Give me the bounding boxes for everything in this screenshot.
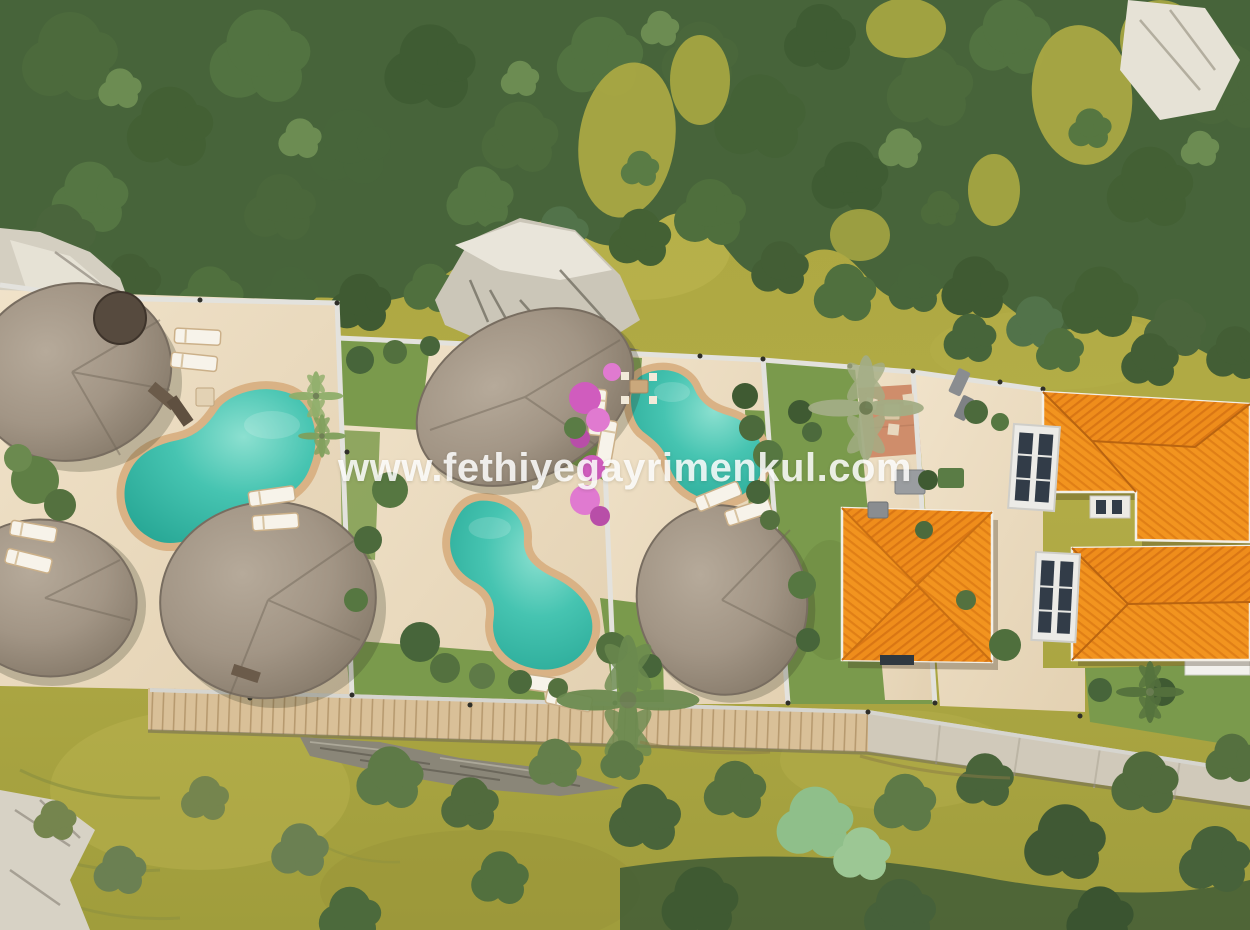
glazed-bay — [1008, 424, 1060, 511]
side-table — [196, 388, 214, 406]
villa-window — [880, 655, 914, 665]
storage-box — [868, 502, 888, 518]
round-canopy — [94, 292, 146, 344]
site-render: www.fethiyegayrimenkul.com — [0, 0, 1250, 930]
planter — [938, 468, 964, 488]
glazed-bay — [1031, 552, 1080, 642]
render-canvas — [0, 0, 1250, 930]
